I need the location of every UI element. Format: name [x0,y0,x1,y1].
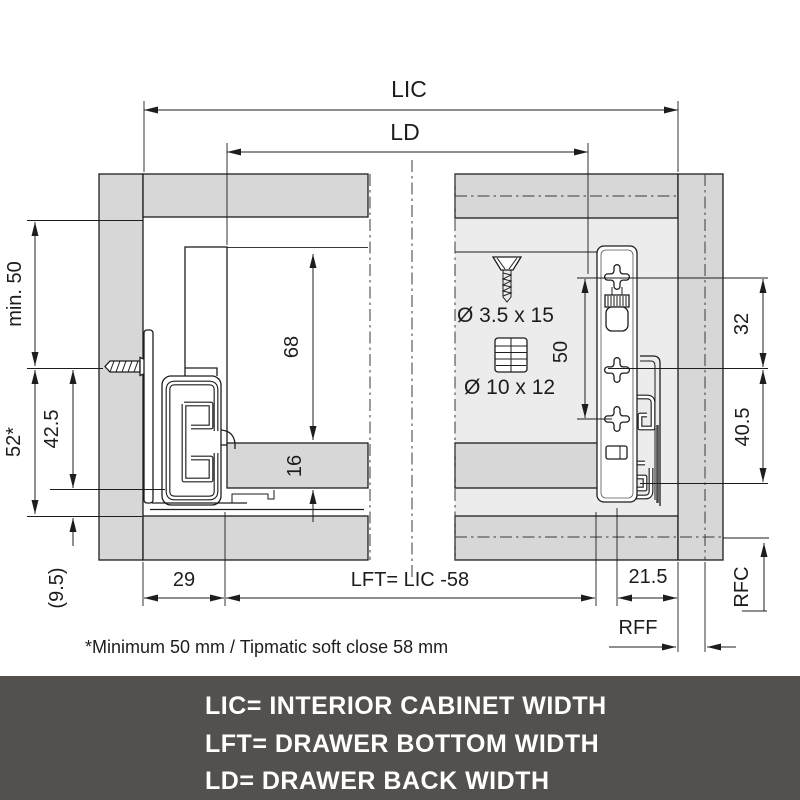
drawer-slide-installation-diagram: Ø 3.5 x 15 Ø 10 x 12 [0,0,800,800]
dowel-size-label: Ø 10 x 12 [464,376,555,399]
label-29: 29 [173,569,195,591]
label-lic: LIC [391,76,427,102]
label-42-5: 42.5 [41,410,63,449]
label-min50: min. 50 [4,261,26,327]
label-32: 32 [731,313,753,335]
label-9-5: (9.5) [46,567,68,608]
slide-flange [144,330,153,503]
drawer-bottom-right-view [455,443,602,488]
label-68: 68 [281,336,303,358]
legend-line-ld: LD= DRAWER BACK WIDTH [205,767,550,795]
label-50: 50 [550,341,572,363]
footnote: *Minimum 50 mm / Tipmatic soft close 58 … [85,637,448,657]
legend-line-lft: LFT= DRAWER BOTTOM WIDTH [205,730,599,758]
legend-bar: LIC= INTERIOR CABINET WIDTH LFT= DRAWER … [0,676,800,800]
label-rff: RFF [619,617,658,639]
label-ld: LD [390,119,419,145]
slide-body-outer [162,376,221,505]
dowel-icon [495,338,527,372]
cabinet-bottom-left-view [143,516,368,560]
label-40-5: 40.5 [732,408,754,447]
label-lft: LFT= LIC -58 [351,569,469,591]
screw-size-label: Ø 3.5 x 15 [457,304,554,327]
cabinet-bottom-right-view [455,516,678,560]
cabinet-side-right [678,174,723,560]
label-21-5: 21.5 [629,566,668,588]
label-rfc: RFC [731,566,753,607]
legend-line-lic: LIC= INTERIOR CABINET WIDTH [205,692,607,720]
bracket-slot [606,446,627,459]
technical-drawing-canvas: Ø 3.5 x 15 Ø 10 x 12 [0,0,800,800]
label-16: 16 [284,455,306,477]
left-view-slide-profile [105,247,368,510]
drawer-side-top-left-view [143,174,368,217]
label-52: 52* [3,427,25,457]
